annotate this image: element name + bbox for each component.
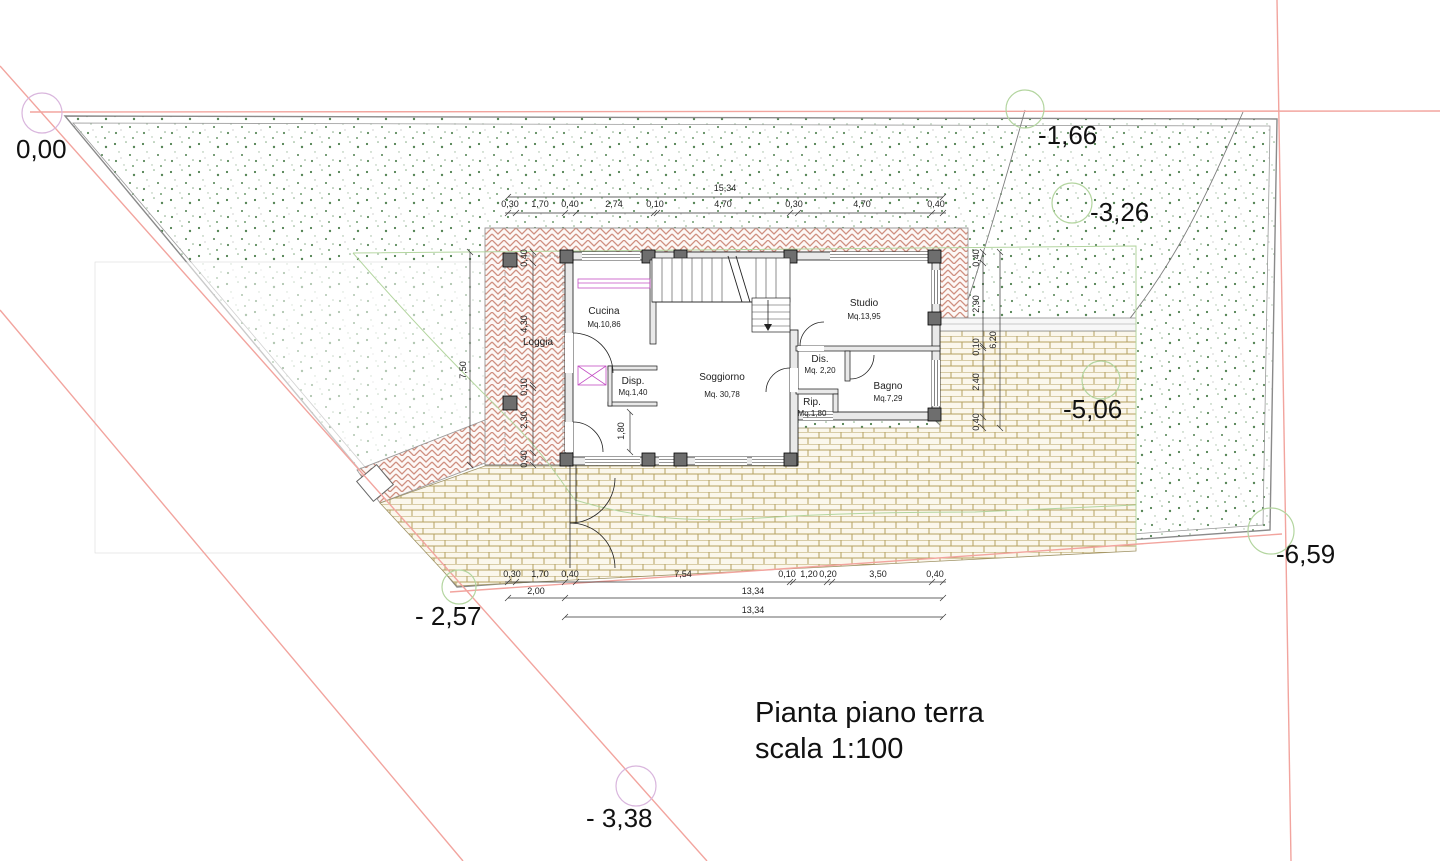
dim-label: 0,40 — [926, 569, 944, 579]
dim-label: 0,40 — [561, 199, 579, 209]
room-label-disp: Disp. — [622, 376, 645, 387]
dim-label: 4,70 — [853, 199, 871, 209]
dim-label: 2,40 — [971, 373, 981, 391]
dim-label: 1,20 — [800, 569, 818, 579]
room-area-rip: Mq.1,80 — [798, 409, 827, 418]
dim-label: 0,30 — [501, 199, 519, 209]
red-line-right — [1277, 0, 1291, 861]
dim-label: 0,40 — [971, 413, 981, 431]
red-line-top — [30, 111, 1440, 112]
room-area-soggiorno: Mq. 30,78 — [704, 390, 740, 399]
dim-label: 2,00 — [527, 586, 545, 596]
loggia-column-bottom — [503, 396, 517, 410]
dim-label: 7,54 — [674, 569, 692, 579]
dim-label: 0,40 — [927, 199, 945, 209]
dim-label: 0,30 — [503, 569, 521, 579]
drawing-title: Pianta piano terra — [755, 697, 985, 729]
room-label-dis: Dis. — [811, 354, 828, 365]
dim-label: 0,40 — [971, 249, 981, 267]
dim-label: 2,74 — [605, 199, 623, 209]
dim-label: 0,10 — [971, 338, 981, 356]
title-block: Pianta piano terra scala 1:100 — [755, 697, 985, 765]
dim-interior-door: 1,80 — [616, 422, 626, 440]
dim-label: 0,30 — [785, 199, 803, 209]
dim-label: 1,70 — [531, 199, 549, 209]
dim-label: 0,10 — [646, 199, 664, 209]
dim-label: 0,20 — [819, 569, 837, 579]
room-label-loggia: Loggia — [523, 337, 553, 348]
dim-label: 4,30 — [519, 315, 529, 333]
elevation-0-00: 0,00 — [16, 134, 67, 164]
corridor-door-gap — [790, 368, 798, 392]
dim-label: 2,30 — [519, 411, 529, 429]
elevation-2-57: - 2,57 — [415, 601, 482, 631]
room-label-rip: Rip. — [803, 397, 821, 408]
dim-top-total: 15,34 — [714, 183, 737, 193]
dim-label: 13,34 — [742, 586, 765, 596]
room-area-cucina: Mq.10,86 — [587, 320, 621, 329]
studio-door-gap — [798, 346, 824, 351]
room-label-cucina: Cucina — [588, 306, 620, 317]
drawing-scale: scala 1:100 — [755, 733, 903, 765]
elevation-5-06: -5,06 — [1063, 394, 1122, 424]
elevation-3-38: - 3,38 — [586, 803, 653, 833]
loggia-column-top — [503, 253, 517, 267]
dim-label: 1,70 — [531, 569, 549, 579]
dim-label: 0,10 — [778, 569, 796, 579]
room-label-soggiorno: Soggiorno — [699, 372, 745, 383]
dim-label: 0,40 — [519, 249, 529, 267]
site-plan-drawing: 15,34 0,30 1,70 0,40 2,74 0,10 4,70 0,30… — [0, 0, 1440, 861]
dim-label: 0,10 — [519, 378, 529, 396]
retaining-curb — [940, 318, 1136, 331]
room-area-disp: Mq.1,40 — [619, 388, 648, 397]
dim-label: 0,40 — [561, 569, 579, 579]
dim-label: 13,34 — [742, 605, 765, 615]
dim-label: 4,70 — [714, 199, 732, 209]
dim-left-total: 7,50 — [458, 361, 468, 379]
dim-label: 0,40 — [519, 450, 529, 468]
elevation-1-66: -1,66 — [1038, 120, 1097, 150]
floor-plan-sheet: 15,34 0,30 1,70 0,40 2,74 0,10 4,70 0,30… — [0, 0, 1440, 861]
room-area-studio: Mq.13,95 — [847, 312, 881, 321]
benchmark-circle-3-38 — [616, 766, 656, 806]
room-area-dis: Mq. 2,20 — [804, 366, 836, 375]
dim-right-total: 6,20 — [988, 331, 998, 349]
dim-label: 3,50 — [869, 569, 887, 579]
dim-label: 2,90 — [971, 295, 981, 313]
room-label-studio: Studio — [850, 298, 879, 309]
room-label-bagno: Bagno — [874, 381, 903, 392]
elevation-3-26: -3,26 — [1090, 197, 1149, 227]
elevation-6-59: -6,59 — [1276, 539, 1335, 569]
room-area-bagno: Mq.7,29 — [874, 394, 903, 403]
